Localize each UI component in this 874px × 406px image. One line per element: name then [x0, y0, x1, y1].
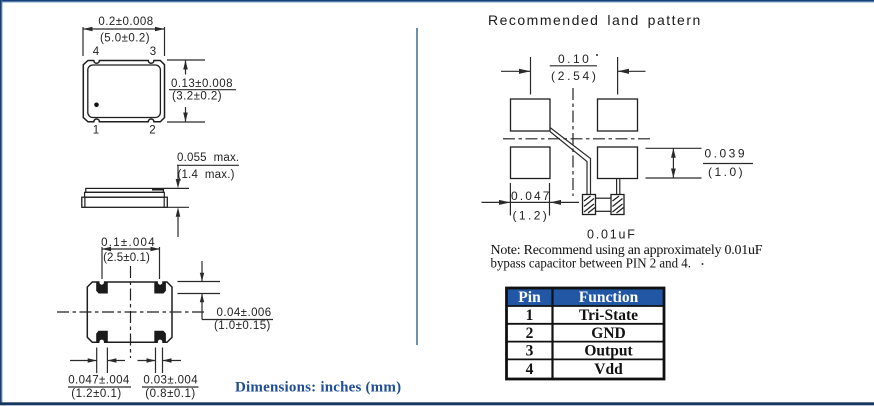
svg-text:(1.0): (1.0): [708, 165, 745, 179]
svg-text:(1.2): (1.2): [513, 209, 550, 223]
svg-text:0.13±0.008: 0.13±0.008: [171, 78, 233, 90]
svg-text:0.055 max.: 0.055 max.: [177, 152, 239, 164]
svg-text:bypass capacitor between PIN 2: bypass capacitor between PIN 2 and 4.: [491, 256, 692, 271]
svg-text:(1.4 max.): (1.4 max.): [178, 169, 235, 181]
svg-text:3: 3: [150, 46, 156, 58]
svg-text:0.047±.004: 0.047±.004: [68, 375, 130, 387]
svg-text:(1.2±0.1): (1.2±0.1): [71, 388, 121, 400]
svg-text:0.2±0.008: 0.2±0.008: [98, 16, 153, 28]
svg-text:GND: GND: [591, 325, 625, 342]
svg-text:2: 2: [149, 125, 155, 137]
svg-text:Recommended land pattern: Recommended land pattern: [488, 12, 702, 28]
svg-text:3: 3: [526, 343, 534, 360]
svg-text:(3.2±0.2): (3.2±0.2): [172, 91, 222, 103]
svg-text:Pin: Pin: [518, 289, 541, 306]
svg-text:0.03±.004: 0.03±.004: [143, 375, 198, 387]
svg-text:1: 1: [526, 307, 534, 324]
svg-text:Vdd: Vdd: [594, 361, 623, 378]
svg-text:Tri-State: Tri-State: [579, 307, 638, 324]
svg-text:(5.0±0.2): (5.0±0.2): [100, 33, 150, 45]
svg-text:Dimensions: inches (mm): Dimensions: inches (mm): [235, 380, 401, 396]
svg-text:4: 4: [93, 46, 100, 58]
svg-text:4: 4: [526, 361, 534, 378]
svg-text:0.1±.004: 0.1±.004: [101, 237, 156, 249]
svg-text:0.039: 0.039: [705, 147, 748, 161]
svg-text:0.04±.006: 0.04±.006: [217, 307, 272, 319]
svg-text:Output: Output: [584, 343, 633, 360]
svg-text:(0.8±0.1): (0.8±0.1): [145, 388, 195, 400]
svg-text:1: 1: [93, 125, 99, 137]
svg-text:0.01uF: 0.01uF: [587, 228, 637, 242]
svg-text:0.10: 0.10: [558, 52, 591, 66]
svg-text:(2.54): (2.54): [551, 69, 599, 83]
svg-text:(2.5±0.1): (2.5±0.1): [103, 252, 150, 264]
svg-text:(1.0±0.15): (1.0±0.15): [214, 320, 271, 332]
svg-text:Function: Function: [579, 289, 639, 306]
svg-text:2: 2: [526, 325, 534, 342]
svg-text:0.047: 0.047: [511, 189, 552, 203]
